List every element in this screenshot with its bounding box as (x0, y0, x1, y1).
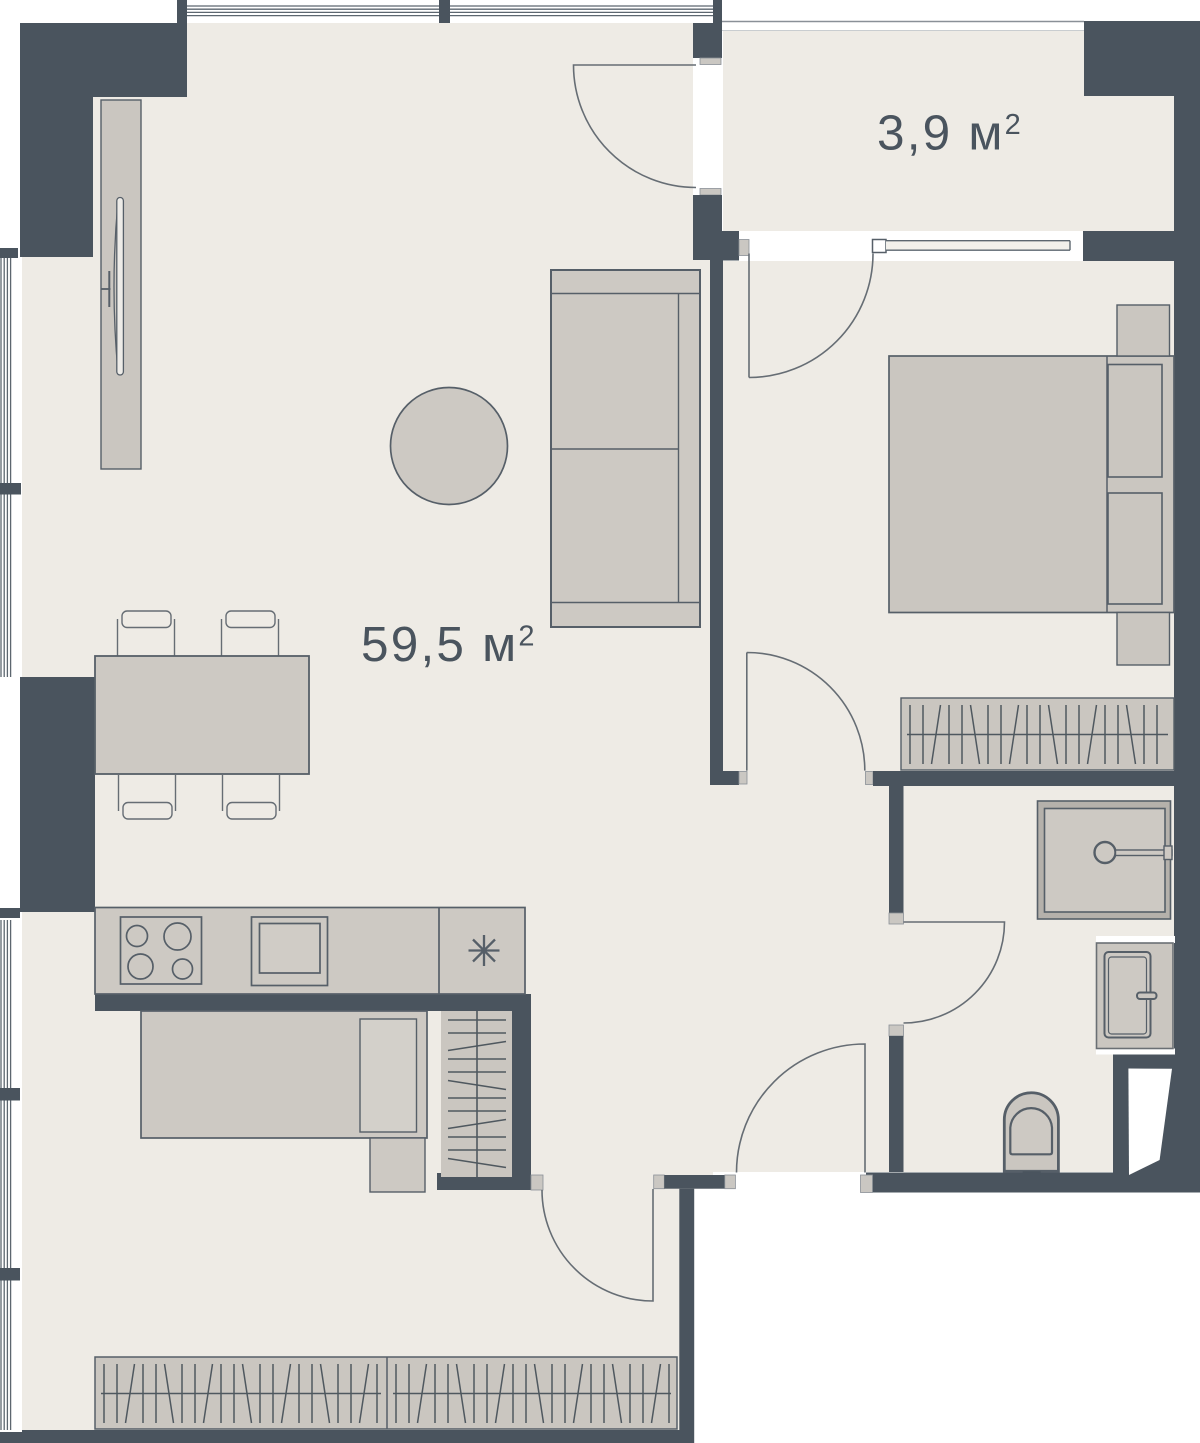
svg-text:59,5 м2: 59,5 м2 (361, 617, 534, 672)
svg-text:3,9 м2: 3,9 м2 (877, 106, 1021, 161)
